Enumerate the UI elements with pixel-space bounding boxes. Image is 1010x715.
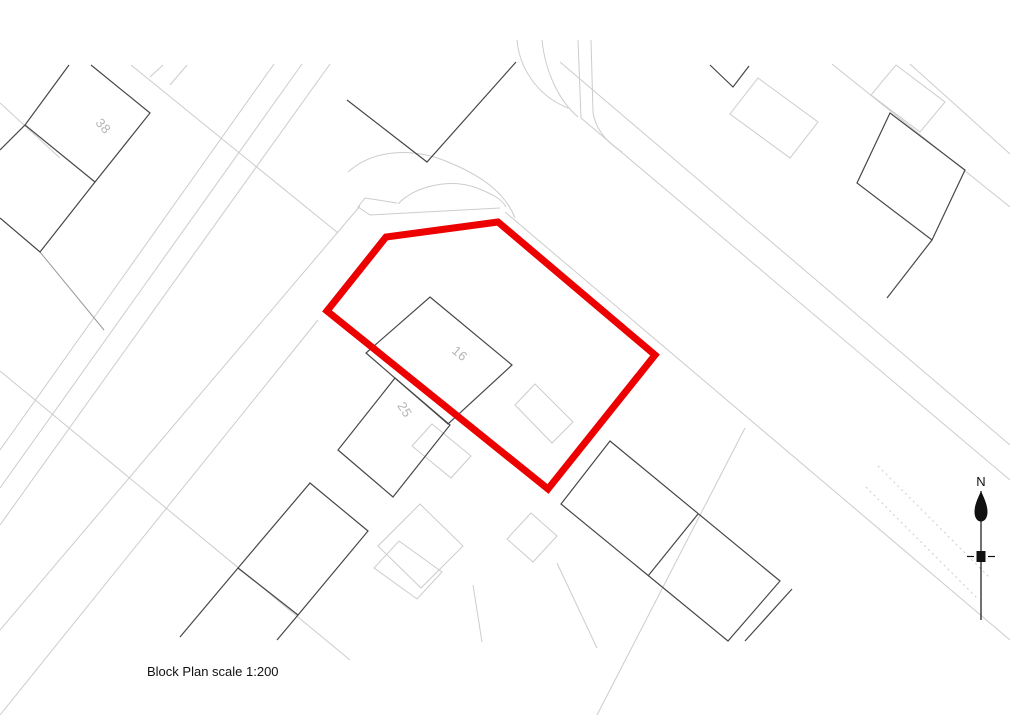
map-line (505, 212, 1010, 640)
outbuilding-outline (515, 384, 573, 443)
block-plan-page: { "plan": { "caption": "Block Plan scale… (0, 0, 1010, 715)
building-wall-extension (180, 568, 238, 637)
outbuilding-outline (730, 78, 818, 158)
map-line (0, 64, 330, 525)
plot-number-label: 25 (394, 399, 415, 420)
building-38-outline (0, 65, 150, 252)
site-plan-canvas: 38 16 25 N (0, 0, 1010, 715)
map-line (0, 64, 302, 488)
culdesac-spur (358, 198, 500, 215)
plot-number-label: 16 (449, 343, 470, 364)
map-line (832, 64, 1010, 207)
building-wall-extension (745, 589, 792, 641)
map-line (0, 103, 60, 158)
building-wall-extension (887, 240, 932, 298)
map-line (0, 320, 318, 715)
north-arrow-marker (977, 551, 986, 562)
north-label: N (976, 474, 985, 489)
outbuilding-outline (378, 504, 463, 588)
map-line (557, 563, 597, 648)
plot-number-label: 38 (93, 115, 114, 137)
culdesac-inner-curve (398, 184, 506, 207)
boundary-corner (710, 65, 749, 87)
map-line (170, 65, 187, 85)
building-outline-sw (238, 483, 368, 615)
building-wall-extension (277, 615, 298, 640)
map-line (0, 64, 274, 450)
side-road-curve (517, 40, 568, 108)
boundary-v-line (347, 62, 516, 162)
outbuilding-outline (507, 513, 557, 562)
map-line (131, 65, 338, 233)
building-outline-ne (857, 113, 965, 240)
outbuilding-outline (412, 424, 471, 478)
north-arrow: N (967, 474, 995, 620)
plot-labels-layer: 38 16 25 (93, 115, 471, 420)
outbuilding-outline (871, 65, 945, 132)
map-line (473, 585, 482, 642)
side-road-curve (591, 40, 622, 152)
plan-caption: Block Plan scale 1:200 (147, 664, 279, 679)
site-boundary-outline (327, 222, 655, 489)
map-line (40, 252, 104, 330)
map-line (597, 428, 745, 715)
map-line (910, 64, 1010, 154)
building-outline-se (561, 441, 780, 641)
outbuilding-outline (374, 541, 442, 599)
map-line (0, 371, 350, 660)
map-dashed-path (866, 487, 978, 599)
side-road-curve (542, 40, 578, 117)
map-dashed-path (878, 466, 990, 578)
roads-and-plot-lines-layer (0, 40, 1010, 715)
buildings-layer (0, 62, 965, 641)
map-line (581, 118, 1010, 480)
map-line (150, 65, 163, 77)
north-arrow-head (975, 491, 988, 522)
